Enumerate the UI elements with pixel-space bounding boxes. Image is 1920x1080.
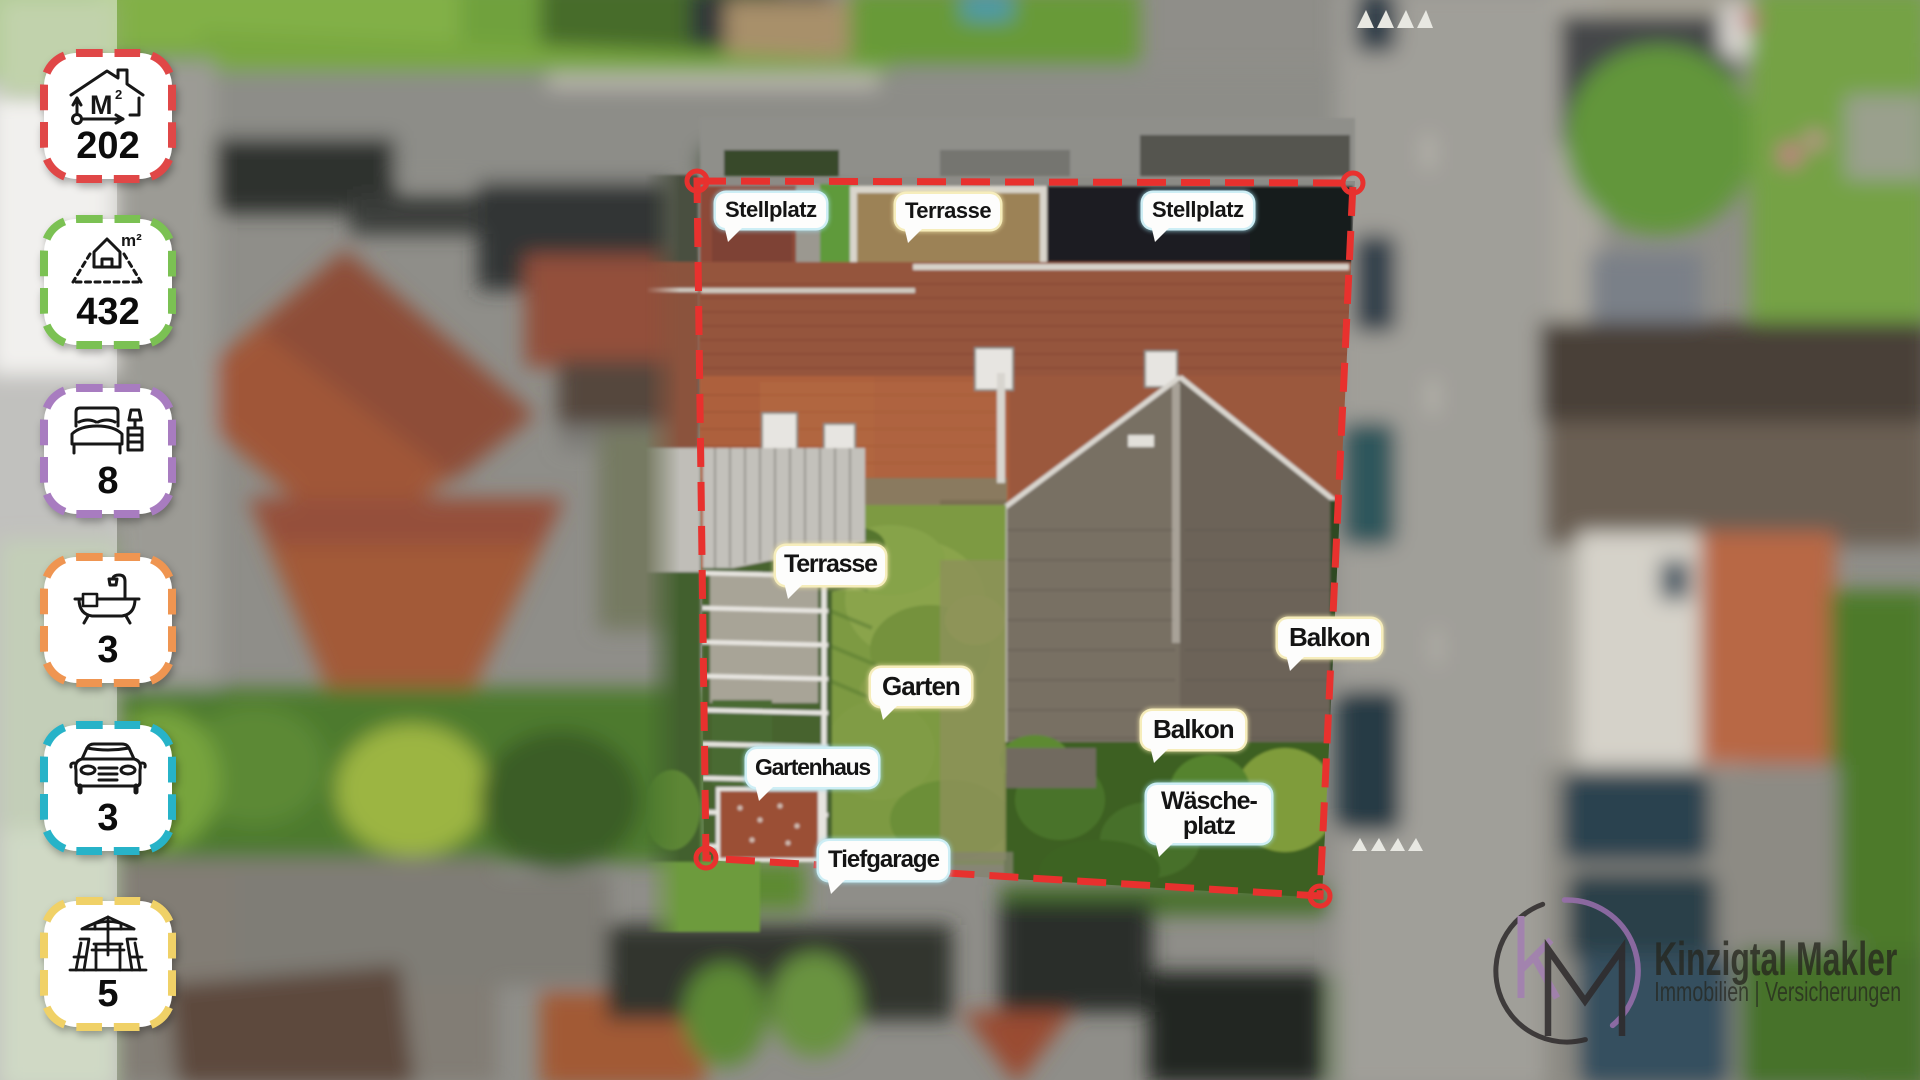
- svg-text:M: M: [90, 90, 113, 120]
- svg-text:Immobilien | Versicherungen: Immobilien | Versicherungen: [1654, 977, 1901, 1008]
- svg-text:m²: m²: [121, 231, 142, 250]
- svg-text:2: 2: [115, 87, 122, 102]
